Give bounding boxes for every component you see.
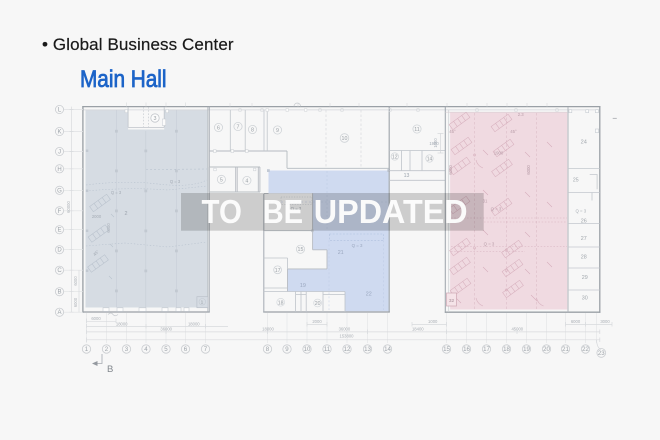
svg-text:Q = 3: Q = 3	[352, 243, 363, 248]
svg-text:14: 14	[384, 346, 391, 353]
svg-text:23: 23	[598, 350, 605, 357]
svg-text:3000: 3000	[600, 319, 610, 324]
svg-text:G: G	[57, 188, 62, 194]
svg-text:D: D	[57, 248, 62, 254]
svg-text:9: 9	[285, 346, 289, 353]
svg-text:17: 17	[275, 268, 281, 274]
svg-text:A: A	[57, 310, 61, 316]
svg-text:13: 13	[404, 173, 410, 179]
svg-text:12: 12	[344, 346, 351, 353]
svg-text:6000: 6000	[571, 319, 581, 324]
svg-text:3: 3	[154, 116, 157, 122]
svg-text:6000: 6000	[106, 223, 111, 233]
svg-text:1: 1	[201, 299, 204, 305]
svg-text:24: 24	[581, 140, 587, 146]
svg-text:2000: 2000	[92, 214, 102, 219]
svg-text:6000: 6000	[73, 297, 78, 307]
svg-text:5: 5	[220, 177, 223, 183]
svg-text:1000: 1000	[433, 138, 438, 148]
svg-text:TO: TO	[202, 192, 242, 230]
svg-text:B: B	[57, 290, 61, 296]
svg-text:L: L	[58, 108, 62, 114]
svg-text:Q = 3: Q = 3	[170, 179, 181, 184]
svg-text:4: 4	[245, 179, 248, 185]
svg-text:1900: 1900	[494, 151, 504, 156]
svg-text:E: E	[57, 228, 61, 234]
svg-text:45°: 45°	[510, 129, 517, 134]
svg-text:18000: 18000	[262, 327, 274, 332]
svg-text:Q = 3: Q = 3	[491, 207, 502, 212]
svg-text:15: 15	[443, 346, 450, 353]
svg-text:Q = 3: Q = 3	[575, 209, 586, 214]
svg-text:36000: 36000	[339, 327, 351, 332]
svg-text:2.3: 2.3	[518, 112, 525, 117]
svg-text:1000: 1000	[428, 319, 438, 324]
svg-text:18: 18	[278, 300, 284, 306]
svg-text:21: 21	[338, 250, 344, 256]
svg-text:5: 5	[164, 346, 168, 353]
svg-text:Q = 3: Q = 3	[484, 242, 495, 247]
svg-text:7: 7	[237, 125, 240, 131]
svg-text:26: 26	[581, 219, 587, 225]
svg-text:11: 11	[324, 346, 331, 353]
svg-text:36000: 36000	[160, 327, 172, 332]
svg-text:20: 20	[315, 301, 321, 307]
svg-text:9: 9	[276, 128, 279, 134]
svg-text:B: B	[107, 364, 113, 375]
svg-text:11: 11	[414, 127, 420, 133]
svg-text:8: 8	[266, 346, 270, 353]
svg-text:18000: 18000	[188, 321, 200, 326]
svg-text:2: 2	[105, 346, 109, 353]
svg-text:C: C	[57, 268, 62, 274]
svg-text:2: 2	[125, 211, 128, 217]
svg-text:25: 25	[573, 178, 579, 184]
svg-text:29: 29	[582, 275, 588, 281]
svg-text:19: 19	[523, 346, 530, 353]
svg-text:10: 10	[304, 346, 311, 353]
svg-text:45000: 45000	[511, 327, 523, 332]
svg-text:6000: 6000	[448, 165, 453, 175]
svg-text:18000: 18000	[116, 321, 128, 326]
svg-text:H: H	[57, 167, 61, 173]
svg-text:28: 28	[581, 255, 587, 261]
svg-text:30: 30	[582, 296, 588, 302]
svg-text:7: 7	[204, 346, 208, 353]
svg-text:3: 3	[125, 346, 129, 353]
svg-text:21: 21	[562, 346, 569, 353]
svg-text:12: 12	[392, 154, 398, 160]
svg-text:F: F	[58, 209, 62, 215]
svg-text:1: 1	[85, 346, 89, 353]
svg-text:J: J	[58, 150, 61, 156]
svg-text:45°: 45°	[449, 129, 456, 134]
svg-text:19: 19	[300, 283, 306, 289]
svg-text:18: 18	[503, 346, 510, 353]
svg-text:6000: 6000	[526, 165, 531, 175]
svg-text:60000: 60000	[66, 201, 71, 213]
svg-text:Q = 3: Q = 3	[111, 190, 122, 195]
svg-text:22: 22	[366, 291, 372, 297]
svg-text:6: 6	[217, 126, 220, 132]
svg-text:6000: 6000	[73, 276, 78, 286]
svg-text:20: 20	[543, 346, 550, 353]
svg-text:2000: 2000	[312, 319, 322, 324]
svg-text:K: K	[57, 130, 61, 136]
svg-text:17: 17	[483, 346, 490, 353]
svg-text:32: 32	[449, 298, 455, 304]
svg-text:18400: 18400	[412, 327, 424, 332]
svg-text:22: 22	[582, 346, 589, 353]
svg-text:8: 8	[251, 128, 254, 134]
svg-text:153800: 153800	[340, 334, 355, 339]
svg-text:4: 4	[144, 346, 148, 353]
svg-text:14: 14	[427, 156, 433, 162]
svg-text:BE: BE	[263, 193, 303, 230]
svg-text:6: 6	[184, 346, 188, 353]
svg-text:6000: 6000	[91, 316, 101, 321]
svg-text:16: 16	[463, 346, 470, 353]
svg-text:27: 27	[581, 236, 587, 242]
svg-text:15: 15	[298, 247, 304, 253]
svg-text:UPDATED: UPDATED	[314, 192, 468, 230]
svg-text:13: 13	[364, 346, 371, 353]
svg-text:10: 10	[342, 136, 348, 142]
